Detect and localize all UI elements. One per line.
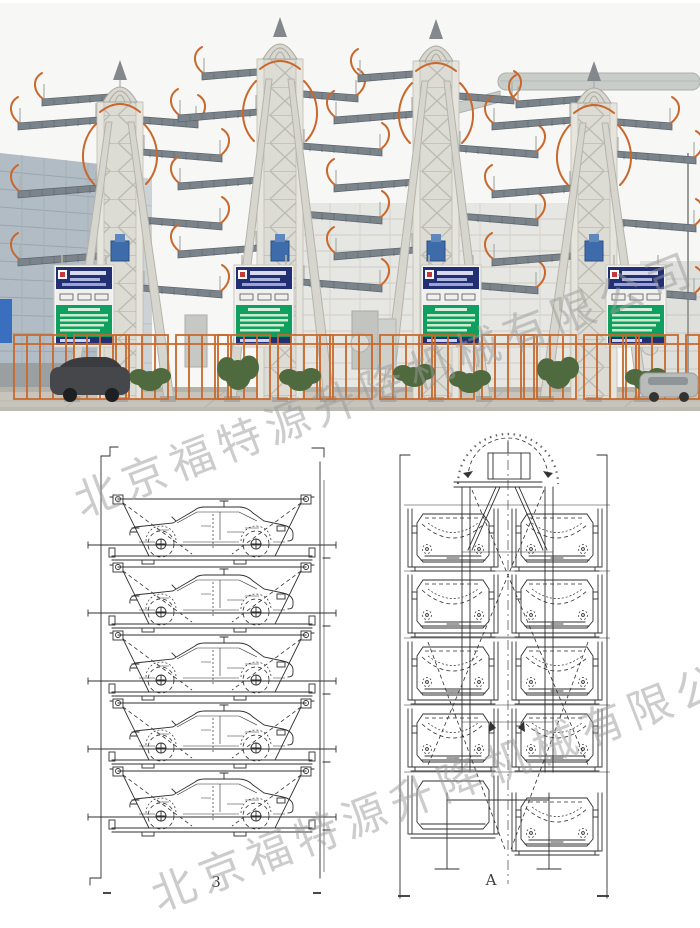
- row-rails: [404, 505, 610, 772]
- center-mast: [454, 482, 553, 772]
- front-view-label: A: [471, 871, 511, 889]
- drive-motor: [585, 241, 603, 261]
- side-elevation-drawing: [82, 432, 342, 910]
- signboard: [606, 255, 666, 347]
- signboard: [234, 255, 294, 347]
- page: 3 A 北京福特源升降机械有限公司 北京福特源升降机械有限公司: [0, 0, 700, 928]
- frame: [90, 447, 330, 893]
- frame: [398, 455, 609, 898]
- parking-system-photo: [0, 3, 700, 411]
- blue-banner: [0, 299, 12, 343]
- signboard: [54, 255, 114, 347]
- front-elevation-drawing: [392, 432, 622, 910]
- side-view-label: 3: [196, 873, 236, 891]
- drive-motor: [111, 241, 129, 261]
- signboard: [421, 255, 481, 347]
